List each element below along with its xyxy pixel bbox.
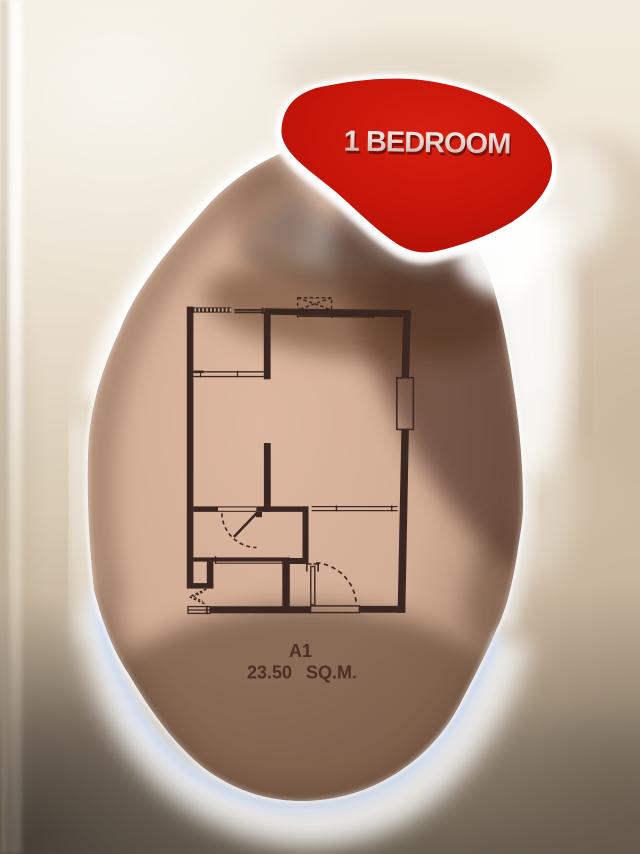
svg-text:SQ.M.: SQ.M. bbox=[306, 663, 357, 683]
svg-text:23.50: 23.50 bbox=[247, 663, 292, 683]
svg-text:1 BEDROOM: 1 BEDROOM bbox=[343, 126, 510, 161]
svg-text:A1: A1 bbox=[289, 641, 312, 661]
